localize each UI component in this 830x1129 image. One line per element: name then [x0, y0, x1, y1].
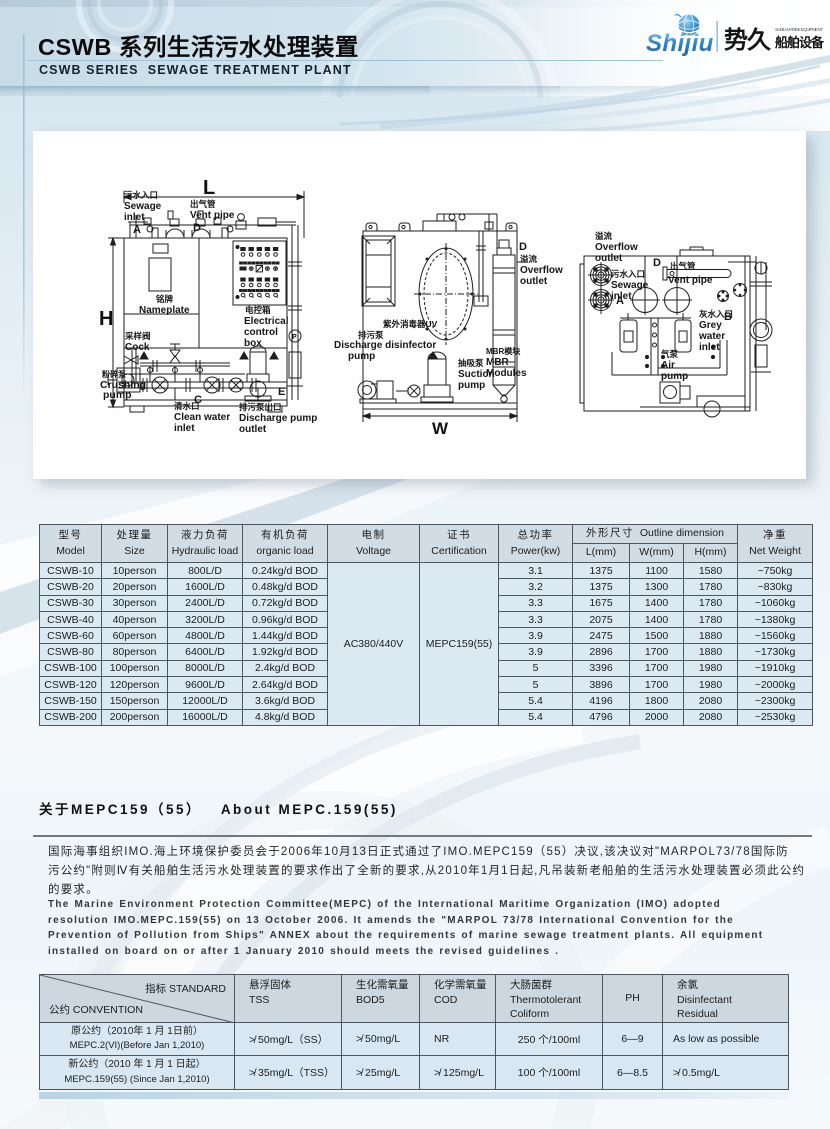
svg-text:Sewage: Sewage: [611, 280, 649, 291]
svg-text:排污泵: 排污泵: [358, 330, 384, 340]
svg-text:pump: pump: [661, 371, 688, 382]
svg-text:采样阀: 采样阀: [124, 331, 151, 341]
svg-text:紫外消毒器UV: 紫外消毒器UV: [383, 319, 438, 329]
svg-text:Nameplate: Nameplate: [139, 305, 190, 316]
svg-text:D: D: [193, 222, 201, 234]
svg-text:排污泵出口: 排污泵出口: [239, 402, 282, 412]
svg-text:溢流: 溢流: [595, 231, 613, 241]
svg-text:MBR: MBR: [486, 357, 510, 368]
svg-text:box: box: [244, 338, 262, 349]
svg-text:Shijiu: Shijiu: [646, 30, 714, 57]
svg-text:pump: pump: [103, 389, 132, 401]
svg-text:Electrical: Electrical: [244, 316, 289, 327]
svg-text:B: B: [724, 311, 732, 323]
svg-text:pump: pump: [458, 380, 485, 391]
svg-text:电控箱: 电控箱: [245, 305, 271, 315]
svg-text:Grey: Grey: [699, 320, 722, 331]
svg-text:Overflow: Overflow: [520, 265, 563, 276]
svg-text:MBR模块: MBR模块: [486, 346, 521, 356]
svg-text:气泵: 气泵: [660, 349, 679, 359]
svg-text:pump: pump: [348, 351, 375, 362]
svg-text:出气管: 出气管: [670, 261, 696, 271]
svg-text:P: P: [292, 334, 297, 341]
svg-text:Vent pipe: Vent pipe: [190, 210, 235, 221]
svg-text:A: A: [616, 295, 624, 307]
svg-text:势久: 势久: [724, 27, 771, 54]
svg-text:Discharge disinfector: Discharge disinfector: [334, 340, 436, 351]
svg-text:Cock: Cock: [125, 342, 150, 353]
svg-text:Sewage: Sewage: [124, 201, 162, 212]
svg-text:A: A: [133, 224, 141, 236]
svg-text:E: E: [278, 386, 285, 398]
svg-text:Overflow: Overflow: [595, 242, 638, 253]
svg-text:粉碎泵: 粉碎泵: [102, 369, 126, 379]
svg-text:Clean water: Clean water: [174, 412, 230, 423]
svg-text:Discharge pump: Discharge pump: [239, 413, 317, 424]
svg-text:Modules: Modules: [486, 368, 527, 379]
svg-text:outlet: outlet: [595, 253, 623, 264]
svg-text:抽吸泵: 抽吸泵: [458, 358, 484, 368]
svg-text:船舶设备: 船舶设备: [775, 35, 825, 50]
svg-text:污水入口: 污水入口: [611, 269, 645, 279]
svg-text:污水入口: 污水入口: [124, 190, 158, 200]
svg-text:L: L: [203, 177, 215, 199]
svg-text:SHIJIU MARINE EQUIPMENT: SHIJIU MARINE EQUIPMENT: [775, 27, 823, 32]
svg-text:inlet: inlet: [699, 342, 720, 353]
svg-text:water: water: [698, 331, 725, 342]
svg-text:D: D: [653, 257, 661, 269]
svg-text:inlet: inlet: [174, 423, 195, 434]
svg-text:清水口: 清水口: [174, 401, 200, 411]
svg-text:outlet: outlet: [520, 276, 548, 287]
svg-text:control: control: [244, 327, 278, 338]
svg-text:Air: Air: [661, 360, 675, 371]
svg-text:铭牌: 铭牌: [156, 294, 174, 304]
svg-text:溢流: 溢流: [520, 254, 538, 264]
svg-text:W: W: [432, 419, 449, 438]
svg-text:出气管: 出气管: [190, 199, 216, 209]
svg-text:outlet: outlet: [239, 424, 267, 435]
svg-text:D: D: [519, 241, 527, 253]
svg-text:inlet: inlet: [124, 212, 145, 223]
svg-text:H: H: [99, 308, 113, 330]
svg-text:Vent pipe: Vent pipe: [668, 275, 713, 286]
